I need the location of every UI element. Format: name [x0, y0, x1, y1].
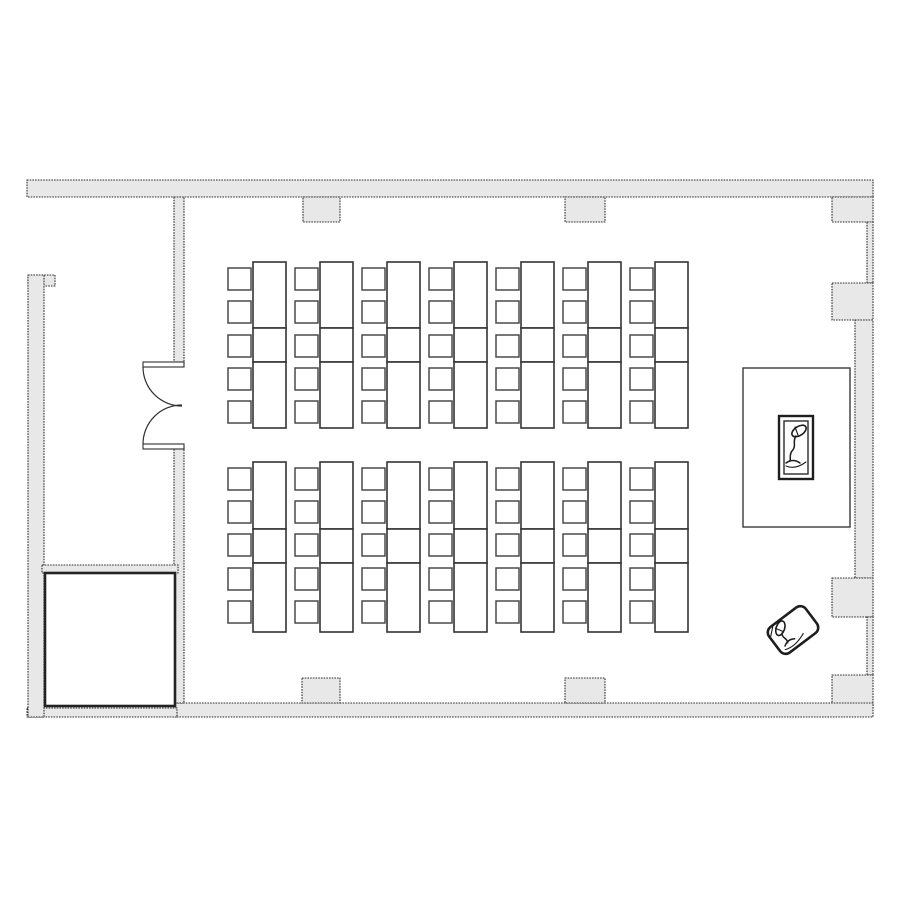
chair: [429, 601, 452, 623]
chair: [429, 501, 452, 523]
chair: [295, 568, 318, 590]
chair: [563, 368, 586, 390]
bottom-wall: [175, 703, 873, 717]
front-desk-block-column-6: [563, 262, 621, 428]
desk: [253, 462, 286, 529]
chair: [228, 468, 251, 490]
chair: [295, 534, 318, 556]
ne-corner-pilaster: [832, 197, 873, 222]
desk: [320, 563, 353, 632]
right-wall-window-lower: [867, 617, 873, 675]
left-wall: [28, 275, 44, 717]
desk: [454, 529, 487, 563]
storage-room: [45, 573, 175, 706]
front-desk-block-column-2: [295, 262, 353, 428]
chair: [630, 468, 653, 490]
portable-lectern-outline: [765, 603, 821, 656]
desk: [253, 362, 286, 428]
front-desk-block-column-7: [630, 262, 688, 428]
vestibule-wall-upper: [174, 197, 184, 366]
desk: [655, 262, 688, 328]
desk: [655, 529, 688, 563]
chair: [630, 568, 653, 590]
desk: [387, 328, 420, 362]
door-swing-arc-2: [143, 405, 182, 444]
chair: [228, 601, 251, 623]
rear-desk-block-column-6: [563, 462, 621, 632]
chair: [630, 501, 653, 523]
chair: [228, 534, 251, 556]
chair: [295, 335, 318, 357]
bottom-pilaster-right: [565, 678, 605, 703]
chair: [228, 368, 251, 390]
desk: [454, 262, 487, 328]
desk: [588, 529, 621, 563]
chair: [429, 335, 452, 357]
desk: [320, 462, 353, 529]
chair: [563, 601, 586, 623]
front-desk-block-column-3: [362, 262, 420, 428]
chair: [563, 534, 586, 556]
chair: [496, 534, 519, 556]
chair: [295, 268, 318, 290]
front-desk-block-column-1: [228, 262, 286, 428]
desk: [253, 529, 286, 563]
desk: [588, 563, 621, 632]
right-pilaster-lower: [832, 578, 873, 617]
portable-lectern: [765, 603, 821, 657]
chair: [429, 468, 452, 490]
desk: [253, 328, 286, 362]
door-swing-arc-1: [143, 367, 182, 406]
chair: [630, 534, 653, 556]
desk: [454, 462, 487, 529]
chair: [630, 368, 653, 390]
chair: [429, 301, 452, 323]
desk: [588, 362, 621, 428]
chair: [295, 401, 318, 423]
chair: [496, 268, 519, 290]
desk: [454, 328, 487, 362]
door-leaf-1: [143, 362, 184, 367]
desk: [521, 262, 554, 328]
chair: [228, 335, 251, 357]
floor-plan: [0, 0, 900, 900]
front-desk-block-column-4: [429, 262, 487, 428]
chair: [295, 501, 318, 523]
desk: [387, 362, 420, 428]
chair: [295, 368, 318, 390]
chair: [228, 301, 251, 323]
chair: [630, 335, 653, 357]
rear-desk-block-column-2: [295, 462, 353, 632]
desk: [320, 362, 353, 428]
rear-desk-block-column-5: [496, 462, 554, 632]
chair: [496, 301, 519, 323]
chair: [362, 468, 385, 490]
chair: [563, 301, 586, 323]
rear-desk-block-column-1: [228, 462, 286, 632]
desk: [655, 328, 688, 362]
chair: [228, 401, 251, 423]
chair: [496, 335, 519, 357]
chair: [563, 268, 586, 290]
chair: [295, 301, 318, 323]
lectern: [779, 416, 813, 479]
right-wall-window-upper: [867, 222, 873, 283]
chair: [496, 401, 519, 423]
desk: [454, 563, 487, 632]
chair: [630, 268, 653, 290]
chair: [496, 601, 519, 623]
desk: [588, 328, 621, 362]
desk: [387, 262, 420, 328]
front-desk-block-column-5: [496, 262, 554, 428]
desk: [253, 262, 286, 328]
desk: [588, 462, 621, 529]
bottom-pilaster-left: [302, 678, 340, 703]
chair: [228, 501, 251, 523]
desk: [387, 563, 420, 632]
chair: [630, 601, 653, 623]
desk: [588, 262, 621, 328]
chair: [429, 401, 452, 423]
desk: [655, 462, 688, 529]
chair: [496, 568, 519, 590]
chair: [630, 401, 653, 423]
rear-desk-block-column-4: [429, 462, 487, 632]
chair: [563, 468, 586, 490]
chair: [362, 501, 385, 523]
rear-desk-block-column-3: [362, 462, 420, 632]
chair: [563, 401, 586, 423]
desk: [521, 362, 554, 428]
chair: [228, 568, 251, 590]
right-pilaster-upper: [832, 283, 873, 320]
chair: [362, 335, 385, 357]
chair: [362, 568, 385, 590]
chair: [630, 301, 653, 323]
chair: [563, 335, 586, 357]
desk: [253, 563, 286, 632]
chair: [496, 368, 519, 390]
top-pilaster-right: [565, 197, 605, 222]
top-wall: [27, 180, 873, 197]
desk: [387, 462, 420, 529]
chair: [362, 268, 385, 290]
desk: [521, 462, 554, 529]
chair: [362, 401, 385, 423]
chair: [429, 534, 452, 556]
chair: [563, 501, 586, 523]
right-wall-middle: [855, 320, 873, 578]
desk: [521, 529, 554, 563]
desk: [320, 262, 353, 328]
bottom-wall-left: [27, 708, 177, 717]
chair: [429, 268, 452, 290]
floor-plan-canvas: [0, 0, 900, 900]
chair: [362, 601, 385, 623]
rear-desk-block-column-7: [630, 462, 688, 632]
desk: [655, 563, 688, 632]
chair: [362, 368, 385, 390]
desk: [320, 328, 353, 362]
se-corner-pilaster: [832, 675, 873, 707]
desk: [655, 362, 688, 428]
chair: [496, 468, 519, 490]
chair: [563, 568, 586, 590]
chair: [496, 501, 519, 523]
chair: [295, 468, 318, 490]
chair: [429, 568, 452, 590]
desk: [387, 529, 420, 563]
door-leaf-2: [143, 444, 184, 449]
chair: [362, 301, 385, 323]
desk: [454, 362, 487, 428]
desk: [320, 529, 353, 563]
chair: [362, 534, 385, 556]
desk: [521, 328, 554, 362]
chair: [228, 268, 251, 290]
desk: [521, 563, 554, 632]
top-pilaster-left: [303, 197, 340, 222]
chair: [429, 368, 452, 390]
chair: [295, 601, 318, 623]
